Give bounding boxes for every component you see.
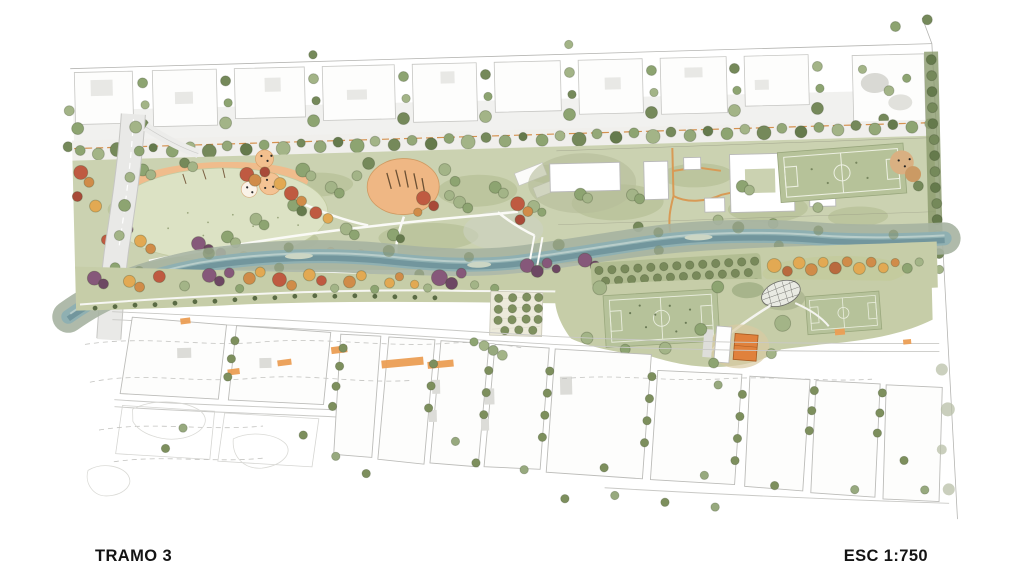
plan-body	[60, 14, 957, 540]
section-title: TRAMO 3	[95, 547, 172, 566]
masterplan-drawing	[0, 0, 1024, 580]
masterplan-sheet: TRAMO 3 ESC 1:750	[0, 0, 1024, 580]
scale-label: ESC 1:750	[844, 547, 928, 566]
tree-grid-plaza	[490, 291, 543, 336]
north-soccer-field	[777, 143, 906, 203]
